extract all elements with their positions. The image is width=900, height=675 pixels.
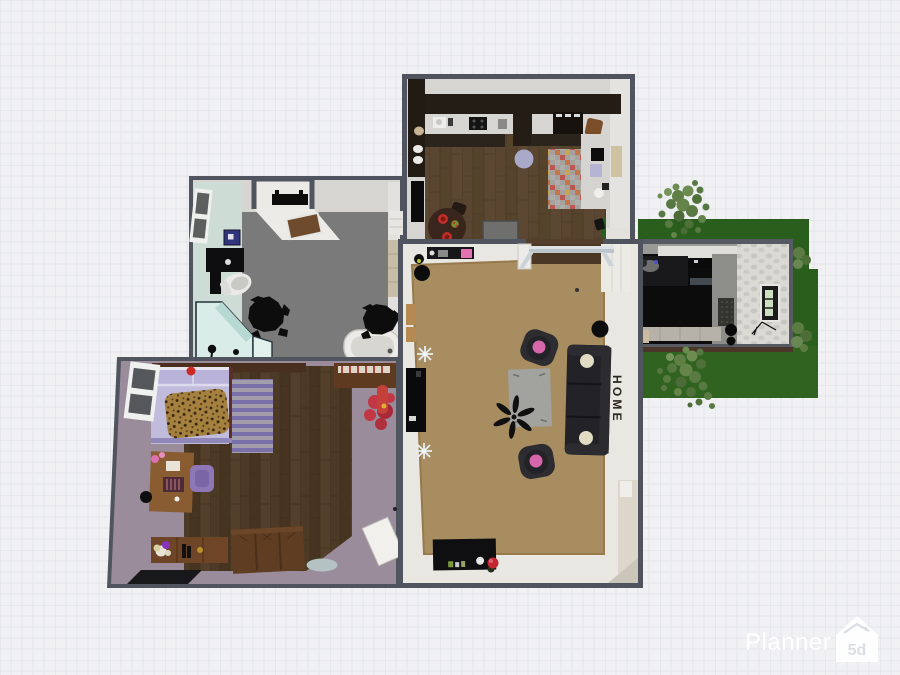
svg-text:5d: 5d [848, 642, 867, 659]
svg-text:HOME: HOME [610, 375, 624, 424]
svg-text:Planner: Planner [745, 629, 831, 656]
